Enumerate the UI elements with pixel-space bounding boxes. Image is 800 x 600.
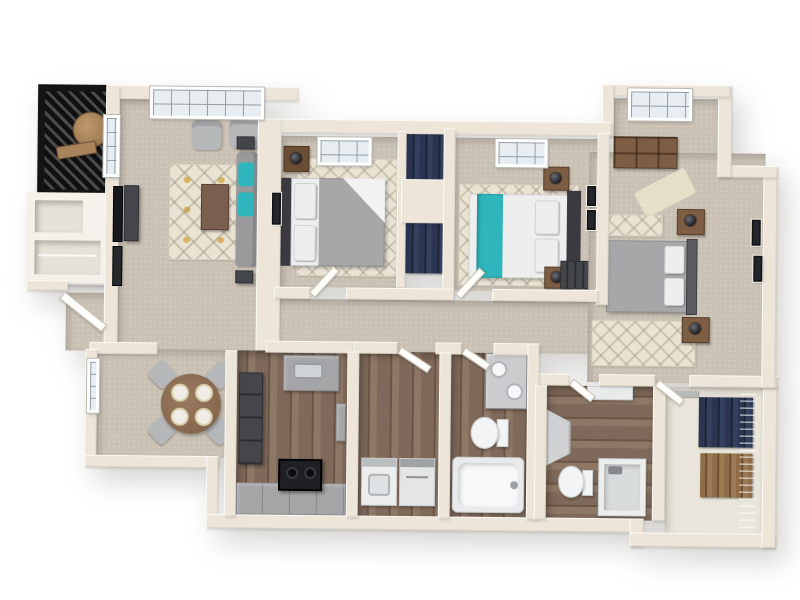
dryer <box>399 458 436 506</box>
vanity-sink <box>490 361 507 378</box>
niche <box>35 200 83 233</box>
dining-area <box>96 349 225 458</box>
double-vanity <box>485 353 528 409</box>
sofa-pillow-teal <box>238 162 254 186</box>
bedroom2-wall-art <box>587 186 596 206</box>
bedroom3-rug <box>591 320 695 367</box>
bathtub-faucet <box>510 481 518 489</box>
bedroom1-skylight <box>317 137 371 166</box>
wall <box>652 387 666 521</box>
floor-plan-render <box>0 0 800 600</box>
toilet-bowl <box>470 417 498 449</box>
media-console <box>124 185 140 241</box>
pillow <box>293 225 315 261</box>
wall <box>26 280 68 290</box>
dryer-panel <box>406 476 428 478</box>
wall <box>353 342 397 354</box>
side-table <box>235 270 253 283</box>
storage-niches <box>26 192 111 285</box>
vanity-sink <box>506 383 523 400</box>
coffee-table <box>201 184 229 230</box>
lamp <box>685 215 696 226</box>
bathroom-2 <box>546 386 653 521</box>
dining-window <box>87 359 100 413</box>
wall <box>599 374 655 387</box>
bathroom2-vanity <box>587 386 633 400</box>
corner-shower <box>546 410 571 466</box>
living-room-window <box>150 86 264 119</box>
wall <box>346 351 360 517</box>
walk-in-closet <box>665 387 764 536</box>
lamp <box>290 153 301 164</box>
wall <box>761 382 777 548</box>
living-side-window <box>103 115 120 177</box>
bathroom-1 <box>450 353 528 520</box>
place-setting <box>197 410 211 424</box>
bed-headboard <box>686 239 698 315</box>
wall <box>442 128 456 294</box>
pillow <box>664 278 684 306</box>
pillow <box>294 183 316 219</box>
living-room <box>117 99 260 350</box>
kitchen <box>236 350 348 517</box>
dining-table <box>161 374 222 435</box>
bedroom2-skylight <box>495 139 547 168</box>
place-setting <box>173 410 187 424</box>
wall <box>84 455 218 468</box>
wall <box>274 287 310 299</box>
teal-throw-blanket <box>476 194 503 278</box>
wall <box>492 289 598 302</box>
sofa-pillow-teal <box>238 192 254 216</box>
stove-burner <box>304 467 316 479</box>
patio-bench <box>56 140 98 159</box>
hall-closet <box>406 131 445 179</box>
toilet-bowl <box>558 466 584 498</box>
wall <box>761 166 777 388</box>
bedroom3-rug <box>605 214 663 237</box>
wall <box>206 456 219 522</box>
wall-tv <box>114 187 123 241</box>
wall <box>224 350 238 516</box>
bedroom1-wall-art <box>272 193 281 225</box>
wall <box>535 373 569 385</box>
pillow <box>535 200 559 234</box>
bedroom3-wall-art <box>753 256 762 282</box>
shower-fixture <box>608 466 622 474</box>
wall <box>265 341 353 354</box>
dresser <box>613 136 677 169</box>
wall <box>534 385 547 519</box>
wall <box>255 119 281 351</box>
bedroom3-wall-art <box>752 220 761 246</box>
wall <box>596 133 610 305</box>
wall-art <box>113 247 121 285</box>
hall-closet <box>405 223 444 273</box>
wall <box>717 85 732 177</box>
place-setting <box>197 386 211 400</box>
niche <box>34 240 100 275</box>
kitchen-sink <box>293 363 323 379</box>
side-table <box>237 136 255 149</box>
wall <box>346 287 454 300</box>
wall <box>629 532 775 548</box>
stove-burner <box>286 467 298 479</box>
washer-door <box>368 474 390 496</box>
bedroom3-window <box>628 88 692 121</box>
apartment-plan <box>0 0 800 600</box>
pillow <box>664 246 684 274</box>
wire-shelving <box>739 394 756 528</box>
laundry-room <box>358 352 440 519</box>
wall-oven <box>336 403 346 441</box>
lamp <box>690 323 701 334</box>
armchair <box>192 120 222 150</box>
lamp <box>550 173 561 184</box>
wall <box>401 179 445 223</box>
wall <box>89 342 157 355</box>
tall-cabinets-refrigerator <box>238 372 263 464</box>
sheet-fold <box>343 178 385 222</box>
bedroom2-wall-art <box>587 210 596 230</box>
place-setting <box>173 386 187 400</box>
wall <box>438 352 452 518</box>
